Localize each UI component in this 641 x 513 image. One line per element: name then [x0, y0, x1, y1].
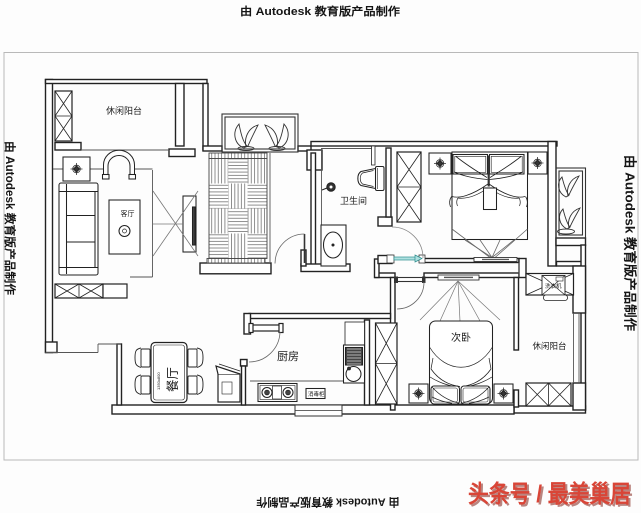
svg-text:休闲阳台: 休闲阳台	[533, 341, 567, 351]
svg-text:卫生间: 卫生间	[340, 195, 367, 206]
svg-text:餐厅: 餐厅	[165, 367, 180, 392]
svg-text:厨房: 厨房	[277, 350, 299, 363]
svg-text:洗衣机: 洗衣机	[545, 282, 562, 290]
svg-text:客厅: 客厅	[121, 209, 135, 218]
svg-text:由 Autodesk 教育版产品制作: 由 Autodesk 教育版产品制作	[3, 141, 17, 295]
svg-text:由 Autodesk 教育版产品制作: 由 Autodesk 教育版产品制作	[257, 496, 400, 510]
svg-text:由 Autodesk 教育版产品制作: 由 Autodesk 教育版产品制作	[240, 4, 400, 18]
svg-text:1350x800: 1350x800	[156, 372, 161, 390]
svg-text:消毒柜: 消毒柜	[308, 390, 325, 398]
svg-text:由 Autodesk 教育版产品制作: 由 Autodesk 教育版产品制作	[623, 155, 638, 331]
svg-text:休闲阳台: 休闲阳台	[106, 105, 142, 116]
svg-text:次卧: 次卧	[451, 331, 471, 344]
svg-text:头条号 / 最美巢居: 头条号 / 最美巢居	[468, 480, 631, 508]
